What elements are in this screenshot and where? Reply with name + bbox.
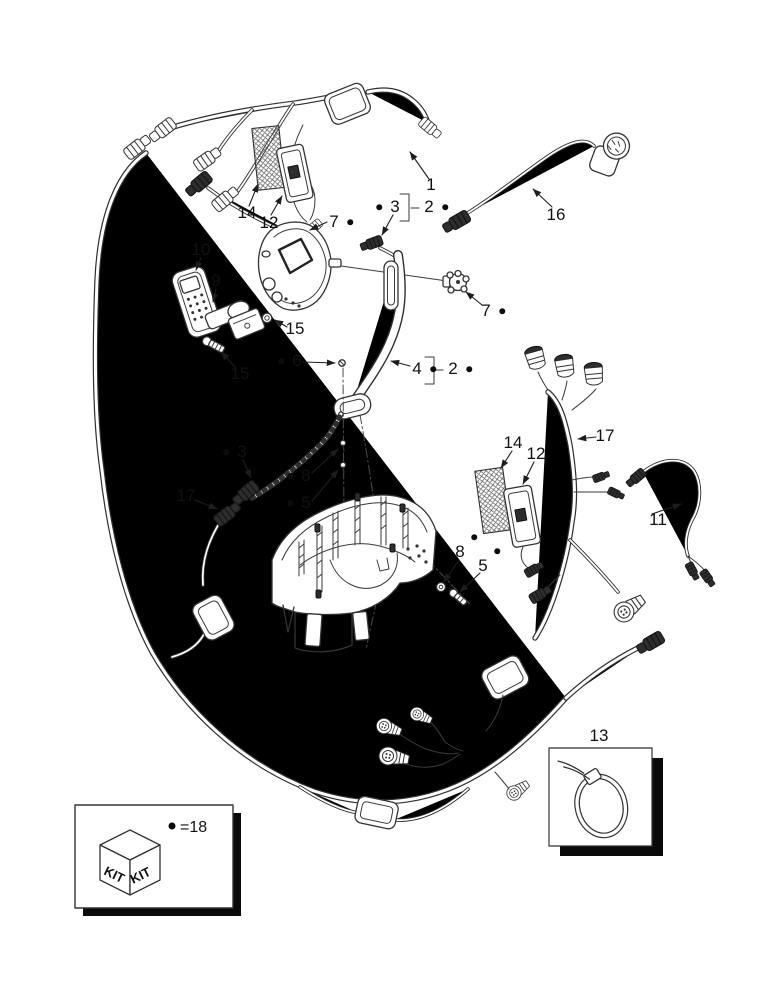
harness-17b xyxy=(524,345,666,656)
screw-6 xyxy=(339,360,345,366)
switch-12b-wire xyxy=(521,547,528,568)
nut-15 xyxy=(262,313,272,323)
mount-knob xyxy=(443,271,469,294)
cable-3a xyxy=(359,235,398,258)
diagram-artwork: KIT KIT =18 xyxy=(0,0,772,1000)
cable-16 xyxy=(441,127,633,234)
washer-8b xyxy=(437,583,446,592)
kit-legend-text: =18 xyxy=(180,819,207,836)
cable-tie-box xyxy=(549,747,663,856)
cable-11 xyxy=(625,461,717,588)
junction-box-top xyxy=(322,81,372,126)
group-bracket-2a xyxy=(400,194,419,221)
mounting-arm-4 xyxy=(332,255,401,421)
group-bracket-2b xyxy=(425,357,443,384)
parts-diagram-page: KIT KIT =18 1141273216710915156423851714… xyxy=(0,0,772,1000)
kit-box: KIT KIT =18 xyxy=(75,805,241,916)
switch-12b xyxy=(503,485,541,548)
kit-legend-dot xyxy=(169,823,176,830)
switch-12a xyxy=(276,144,314,203)
display-monitor xyxy=(258,222,341,310)
